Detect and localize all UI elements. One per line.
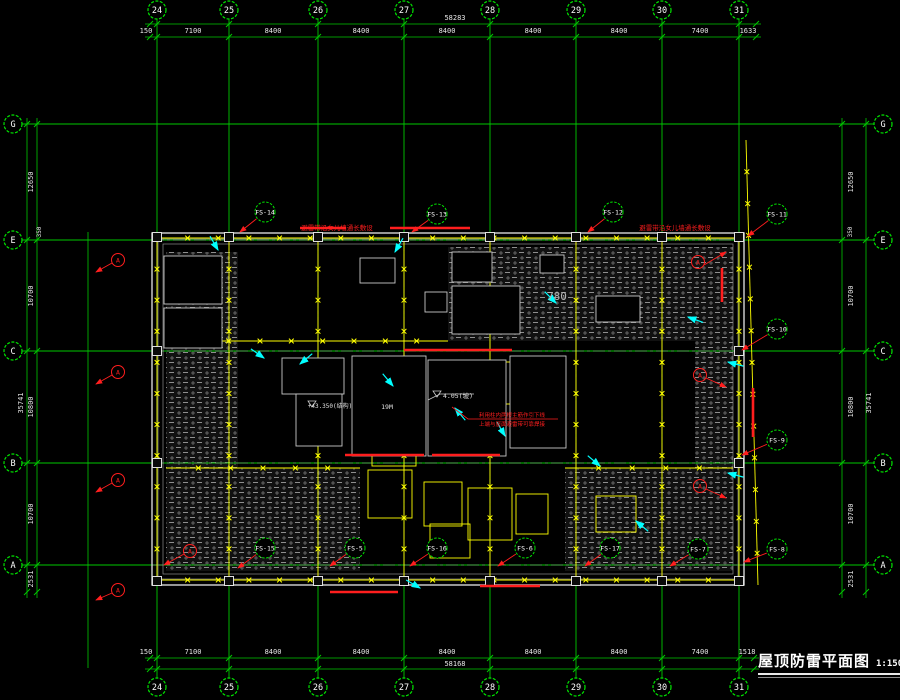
fs-label-text: FS-6 — [517, 545, 533, 553]
axis-bubble-label: B — [880, 459, 885, 469]
dim-text: 8400 — [439, 27, 456, 35]
dim-text: 8400 — [353, 27, 370, 35]
dim-text-total: 58168 — [444, 660, 465, 668]
column — [314, 577, 323, 586]
fs-leader — [410, 554, 428, 566]
fs-label-text: FS-15 — [255, 545, 275, 553]
axis-bubble-label: 29 — [571, 6, 581, 16]
axis-bubble-label: 30 — [657, 6, 667, 16]
column — [486, 577, 495, 586]
roof-structure-outline — [510, 356, 566, 448]
ground-test-marker-label: A — [116, 369, 120, 377]
fs-leader — [412, 220, 428, 232]
dim-text: 1518 — [739, 648, 756, 656]
fs-label-text: FS-13 — [427, 211, 447, 219]
column — [735, 233, 744, 242]
dim-text: 10800 — [847, 396, 855, 417]
rooftop-equipment-outline — [424, 482, 462, 526]
dim-text: 8400 — [353, 648, 370, 656]
ground-marker-leader — [96, 483, 112, 492]
column — [400, 233, 409, 242]
dim-text: 8400 — [265, 648, 282, 656]
axis-bubble-label: 28 — [485, 6, 495, 16]
fs-label-text: FS-10 — [767, 326, 787, 334]
fs-leader — [588, 219, 604, 232]
lightning-annotation: 避雷带沿女儿墙通长敷设 — [301, 223, 373, 232]
dim-text: 8400 — [265, 27, 282, 35]
axis-bubble-label: 31 — [734, 683, 744, 693]
axis-bubble-label: 30 — [657, 683, 667, 693]
axis-bubble-label: 28 — [485, 683, 495, 693]
roof-structure-outline — [452, 286, 520, 334]
dim-text: 7400 — [692, 27, 709, 35]
dim-text: 10700 — [27, 503, 35, 524]
roof-annotation: 350 — [36, 226, 43, 237]
roof-structure-outline — [425, 292, 447, 312]
fs-label-text: FS-9 — [769, 437, 785, 445]
ground-marker-leader — [96, 263, 112, 272]
fs-label-text: FS-11 — [767, 211, 787, 219]
dim-text: 8400 — [611, 27, 628, 35]
fs-label-text: FS-14 — [255, 209, 275, 217]
roof-structure-outline — [164, 308, 222, 348]
column — [735, 347, 744, 356]
column — [735, 577, 744, 586]
title-underline-2 — [758, 677, 900, 678]
hatch-area — [695, 341, 733, 468]
column — [153, 233, 162, 242]
fs-leader — [498, 554, 516, 566]
column — [486, 233, 495, 242]
column — [572, 577, 581, 586]
roof-structure-outline — [540, 255, 564, 273]
rooftop-equipment-outline — [368, 470, 412, 518]
roof-structure-outline — [164, 256, 222, 304]
lightning-annotation: 利用柱内两根主筋作引下线 — [479, 411, 546, 419]
drawing-title: 屋顶防雷平面图 — [758, 650, 870, 671]
column — [572, 233, 581, 242]
dim-text: 150 — [140, 27, 153, 35]
roof-annotation: +43.350(结构) — [308, 402, 353, 410]
column — [225, 233, 234, 242]
roof-annotation: 350 — [847, 226, 854, 237]
cyan-leader-arrow — [251, 349, 264, 358]
axis-bubble-label: 27 — [399, 683, 409, 693]
ground-test-marker-label: A — [116, 587, 120, 595]
axis-bubble-label: 25 — [224, 683, 234, 693]
ground-test-marker-label: A — [116, 477, 120, 485]
axis-bubble-label: 25 — [224, 6, 234, 16]
fs-label-text: FS-17 — [600, 545, 620, 553]
lightning-annotation: 避雷带沿女儿墙通长敷设 — [639, 223, 711, 232]
roof-annotation: 19M — [381, 403, 393, 411]
dim-text: 7400 — [692, 648, 709, 656]
roof-structure-outline — [428, 360, 506, 456]
hatch-area — [238, 468, 360, 571]
ground-test-marker-label: A — [698, 372, 702, 380]
ground-test-marker-label: A — [188, 548, 192, 556]
drawing-title-block: 屋顶防雷平面图 1:150 — [758, 650, 900, 678]
dim-text: 10800 — [27, 396, 35, 417]
fs-leader — [742, 335, 768, 350]
dim-text: 8400 — [611, 648, 628, 656]
roof-annotation: 4.05(坡) — [443, 391, 473, 400]
fs-leader — [240, 219, 256, 232]
dim-text: 12650 — [27, 171, 35, 192]
dim-text: 12650 — [847, 171, 855, 192]
fs-label-text: FS-7 — [690, 546, 706, 554]
dim-text-total: 58283 — [444, 14, 465, 22]
title-underline — [758, 673, 900, 675]
roof-structure-outline — [296, 394, 342, 446]
roof-lightning-plan-drawing: 1507100840084008400840084007400163358283… — [0, 0, 900, 700]
axis-bubble-label: B — [10, 459, 15, 469]
column — [225, 577, 234, 586]
column — [658, 233, 667, 242]
dim-text: 7100 — [185, 648, 202, 656]
hatch-area — [565, 468, 733, 571]
dim-text: 10700 — [847, 285, 855, 306]
axis-bubble-label: A — [880, 561, 885, 571]
axis-bubble-label: 27 — [399, 6, 409, 16]
column — [153, 459, 162, 468]
fs-label-text: FS-8 — [769, 546, 785, 554]
roof-structure-outline — [282, 358, 344, 394]
fs-leader — [748, 221, 768, 236]
column — [735, 459, 744, 468]
dim-text: 8400 — [439, 648, 456, 656]
dim-text: 8400 — [525, 648, 542, 656]
axis-bubble-label: 24 — [152, 683, 162, 693]
column — [314, 233, 323, 242]
axis-bubble-label: G — [10, 120, 15, 130]
drawing-scale: 1:150 — [876, 659, 900, 669]
roof-structure-outline — [596, 296, 640, 322]
axis-bubble-label: C — [10, 347, 15, 357]
column — [658, 577, 667, 586]
fs-label-text: FS-16 — [427, 545, 447, 553]
axis-bubble-label: C — [880, 347, 885, 357]
roof-annotation: 780 — [547, 290, 567, 303]
axis-bubble-label: 26 — [313, 6, 323, 16]
ground-marker-leader — [96, 593, 112, 600]
axis-bubble-label: G — [880, 120, 885, 130]
dim-text: 10700 — [847, 503, 855, 524]
axis-bubble-label: A — [10, 561, 15, 571]
cyan-leader-arrow — [588, 456, 600, 466]
axis-bubble-label: 31 — [734, 6, 744, 16]
rooftop-equipment-outline — [516, 494, 548, 534]
dim-text: 7100 — [185, 27, 202, 35]
fs-label-text: FS-5 — [347, 545, 363, 553]
axis-bubble-label: 24 — [152, 6, 162, 16]
roof-structure-outline — [360, 258, 395, 283]
dim-text-total: 35741 — [17, 392, 25, 413]
dim-text: 2531 — [27, 571, 35, 588]
roof-structure-outline — [452, 252, 492, 282]
cad-viewport: 1507100840084008400840084007400163358283… — [0, 0, 900, 700]
dim-text: 1633 — [740, 27, 757, 35]
ground-marker-leader — [96, 375, 112, 384]
column — [153, 347, 162, 356]
axis-bubble-label: 26 — [313, 683, 323, 693]
fs-label-text: FS-12 — [603, 209, 623, 217]
ground-test-marker-label: A — [116, 257, 120, 265]
dim-text: 10700 — [27, 285, 35, 306]
ground-test-marker-label: A — [696, 259, 700, 267]
column — [153, 577, 162, 586]
axis-bubble-label: 29 — [571, 683, 581, 693]
dim-text: 150 — [140, 648, 153, 656]
ground-test-marker-label: A — [698, 483, 702, 491]
dim-text: 2531 — [847, 571, 855, 588]
lightning-annotation: 上端与屋面避雷带可靠焊接 — [479, 420, 546, 428]
axis-bubble-label: E — [10, 236, 15, 246]
dim-text: 8400 — [525, 27, 542, 35]
dim-text-total: 35741 — [865, 392, 873, 413]
axis-bubble-label: E — [880, 236, 885, 246]
